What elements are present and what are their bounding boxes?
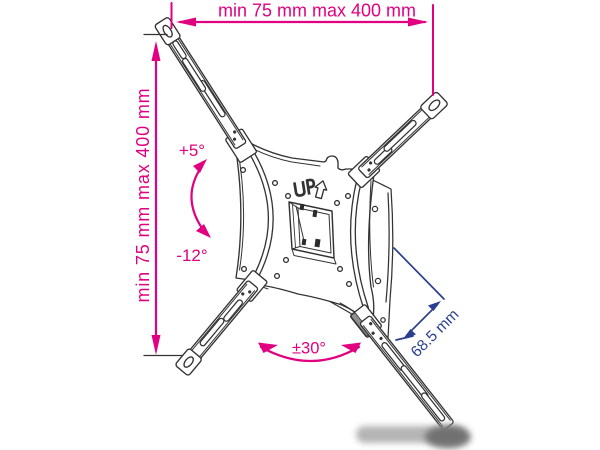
svg-text:min 75 mm max 400 mm: min 75 mm max 400 mm: [133, 87, 153, 302]
svg-text:min 75 mm max 400 mm: min 75 mm max 400 mm: [218, 1, 416, 21]
svg-text:+5°: +5°: [179, 141, 205, 160]
svg-text:±30°: ±30°: [292, 340, 326, 358]
svg-text:-12°: -12°: [176, 246, 207, 265]
svg-text:68.5 mm: 68.5 mm: [408, 306, 463, 361]
